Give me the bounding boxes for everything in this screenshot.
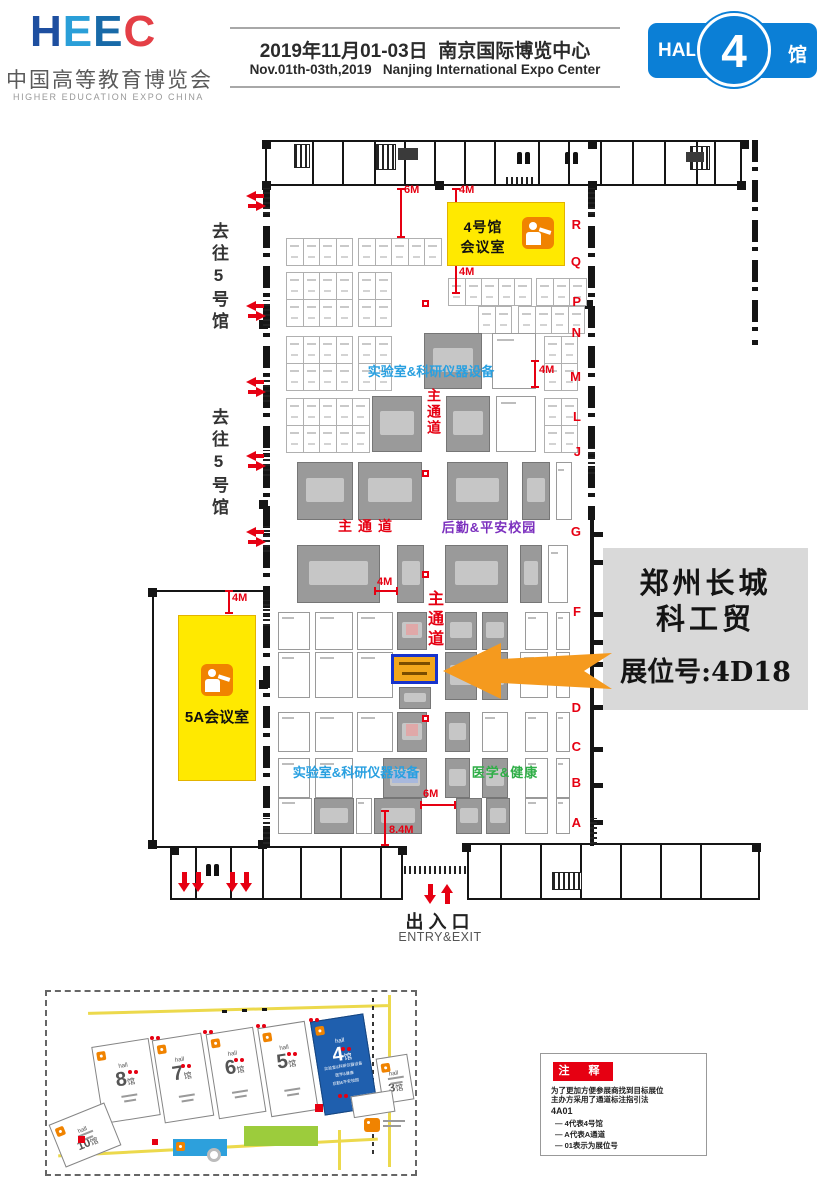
legend-line: — A代表A通道 (555, 1130, 705, 1139)
legend-title: 注 释 (553, 1062, 613, 1081)
site-minimap (45, 990, 417, 1176)
legend-line: — 4代表4号馆 (555, 1119, 705, 1128)
expo-floorplan-page: HEEC 中国高等教育博览会 HIGHER EDUCATION EXPO CHI… (0, 0, 817, 1180)
legend-line: 为了更加方便参展商找到目标展位 (551, 1086, 701, 1095)
legend-line: — 01表示为展位号 (555, 1141, 705, 1150)
legend-line: 4A01 (551, 1107, 701, 1116)
legend-line: 主办方采用了通道标注指引法 (551, 1095, 701, 1104)
